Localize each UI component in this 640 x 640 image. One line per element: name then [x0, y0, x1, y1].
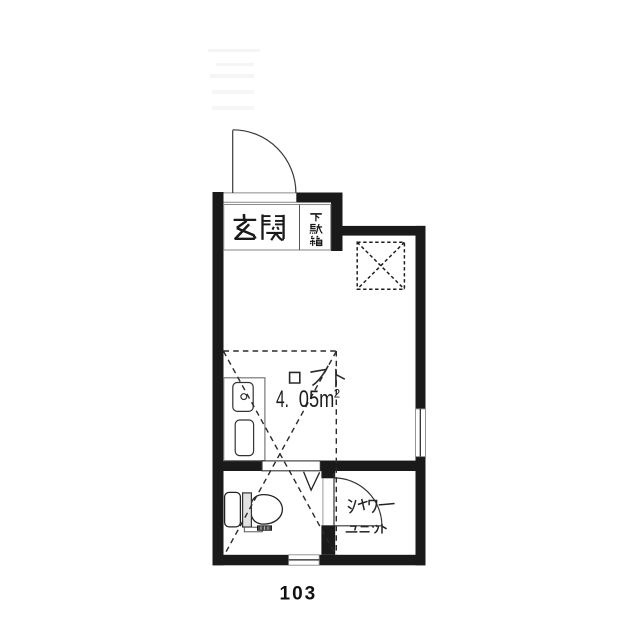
svg-text:103: 103	[280, 584, 318, 605]
svg-text:4.: 4.	[276, 386, 289, 413]
svg-text:05m: 05m	[299, 386, 335, 413]
svg-text:2: 2	[334, 389, 340, 401]
